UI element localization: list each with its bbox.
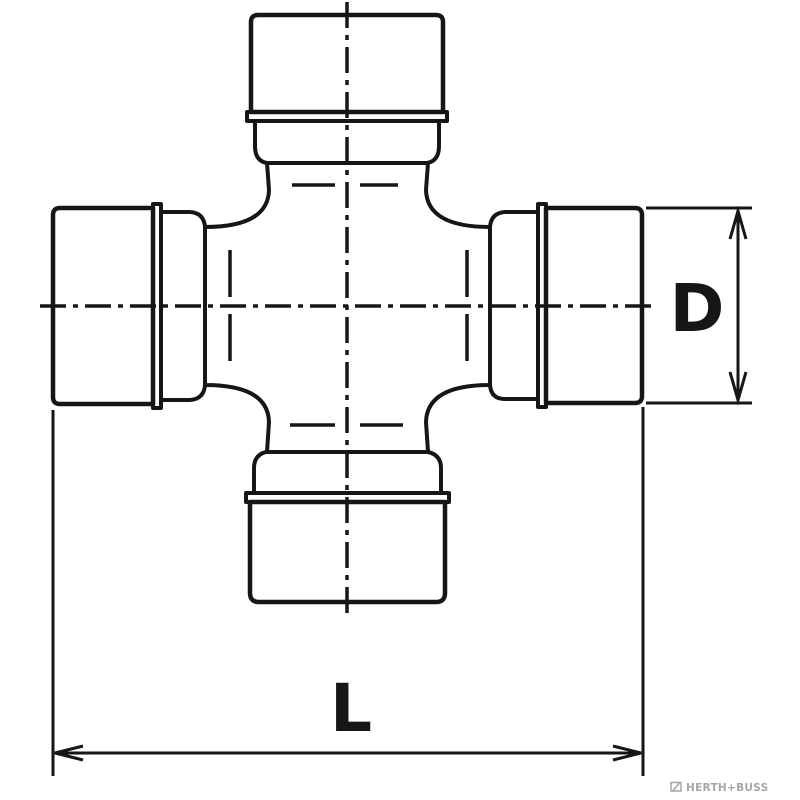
herth-buss-logo-icon xyxy=(671,783,681,792)
dimension-d: D xyxy=(646,208,752,403)
dimension-l-label: L xyxy=(330,670,372,747)
brand-watermark: HERTH+BUSS xyxy=(671,782,769,794)
ujoint-technical-drawing: D L HERTH+BUSS xyxy=(0,0,800,800)
brand-watermark-text: HERTH+BUSS xyxy=(686,782,769,794)
drawing-canvas: D L HERTH+BUSS xyxy=(0,0,800,800)
dimension-d-label: D xyxy=(670,270,725,347)
